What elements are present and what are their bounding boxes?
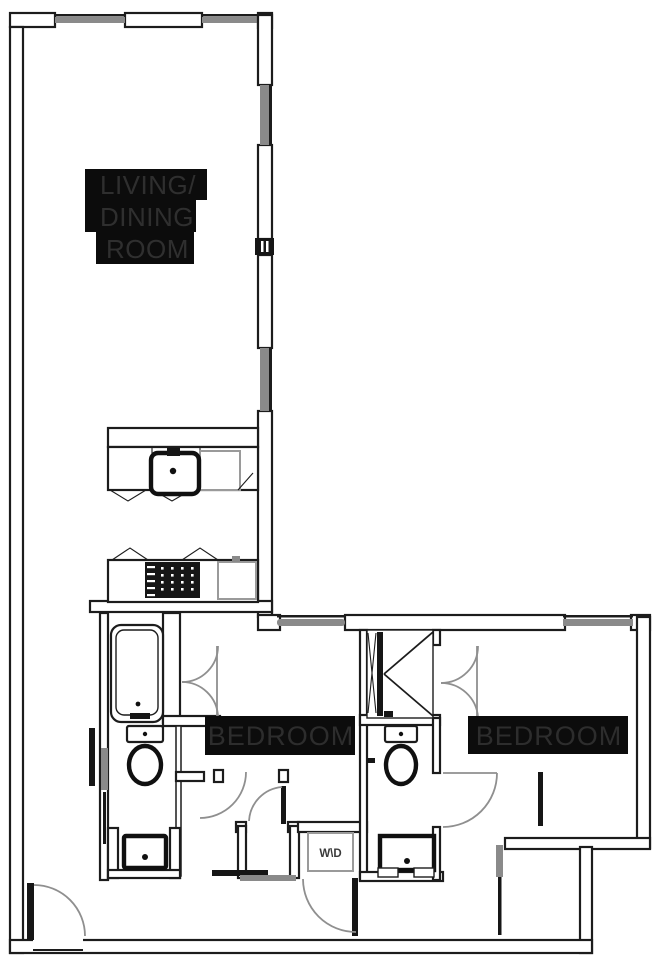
bathroom-2-vanity-sink [378, 836, 434, 877]
window-right-2 [260, 348, 272, 411]
washer-dryer-closet: W\D [308, 833, 353, 871]
bathroom-2-door [443, 773, 497, 827]
foyer-closet-door [249, 786, 286, 824]
window-bedroom-top-2 [563, 615, 633, 626]
left-wall [10, 27, 23, 953]
bathroom-1-vanity-sink [108, 828, 180, 878]
toilet-1 [127, 726, 163, 784]
bedroom-1-label: BEDROOM [205, 716, 355, 755]
svg-text:BEDROOM: BEDROOM [208, 721, 355, 751]
window-mullion [255, 238, 274, 255]
svg-text:ROOM: ROOM [106, 234, 189, 264]
bathtub [111, 625, 163, 722]
bottom-wall [10, 940, 592, 953]
living-dining-room-label: LIVING/ DINING ROOM [85, 169, 207, 264]
svg-text:BEDROOM: BEDROOM [476, 721, 623, 751]
pocket-door-track [101, 748, 108, 790]
window-top-1 [55, 14, 125, 23]
toilet-2 [367, 726, 417, 784]
refrigerator [200, 451, 240, 490]
window-top-2 [202, 14, 259, 23]
floor-plan-page: W\D [0, 0, 659, 967]
dishwasher [218, 556, 256, 599]
window-right-1 [260, 85, 272, 145]
stove [145, 562, 200, 598]
washer-dryer-label: W\D [319, 848, 341, 860]
bedroom-2-label: BEDROOM [468, 716, 628, 754]
svg-text:LIVING/: LIVING/ [100, 170, 196, 200]
svg-text:DINING: DINING [100, 202, 194, 232]
window-bedroom-top-1 [277, 615, 345, 626]
french-doors-bedroom-2 [441, 646, 478, 717]
bathroom-2 [367, 726, 434, 877]
entry-door [27, 883, 85, 940]
right-wall [637, 617, 650, 848]
kitchen-upper-counter [108, 428, 258, 447]
kitchen-sink [151, 448, 199, 494]
hall-door-swing [303, 879, 356, 932]
french-doors-bedroom-1 [182, 646, 218, 717]
floor-plan-drawing: W\D [0, 0, 659, 967]
kitchen [108, 428, 258, 602]
closet-bedroom-2 [367, 630, 433, 718]
